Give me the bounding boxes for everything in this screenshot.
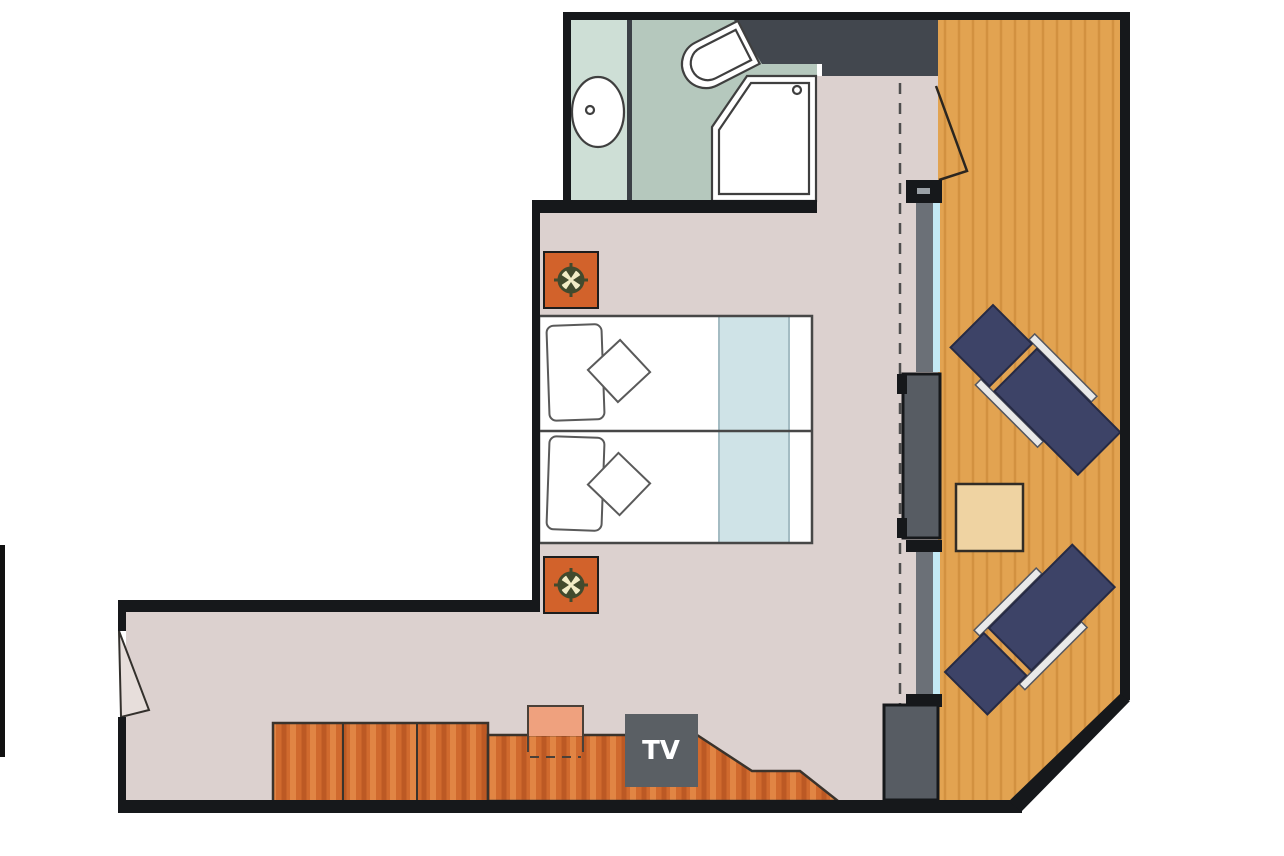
- wall-bedroom-left: [532, 200, 540, 612]
- wall-bottom: [118, 800, 1022, 813]
- bed-runner: [719, 317, 789, 542]
- cabin-floor-plan: TV: [0, 0, 1284, 856]
- twin-beds: [539, 316, 812, 543]
- window-lower-cap-top: [906, 540, 942, 552]
- sink-faucet-dot: [586, 106, 594, 114]
- balcony-table: [956, 484, 1023, 551]
- stool: [528, 706, 583, 736]
- wall-bathroom-bottom: [532, 200, 817, 213]
- shower-drain: [793, 86, 801, 94]
- wall-corridor-top: [118, 600, 540, 612]
- door-frame-tab-top: [897, 374, 907, 394]
- door-frame-tab-bottom: [897, 518, 907, 538]
- window-lower-glass: [933, 552, 940, 694]
- window-cap-label: [917, 188, 930, 194]
- bathroom-partition: [627, 20, 632, 200]
- wall-top: [563, 12, 1130, 20]
- wall-entry-jamb-bottom: [118, 717, 126, 803]
- left-edge-plan-fragment: [0, 545, 5, 757]
- floor-plan-page: TV: [0, 0, 1284, 856]
- window-upper-frame: [916, 203, 933, 372]
- wall-pier-at-balcony: [884, 705, 938, 800]
- window-lower-frame: [916, 552, 933, 694]
- wall-balcony-right: [1120, 12, 1130, 700]
- tv-label: TV: [642, 736, 680, 766]
- balcony-sliding-door: [903, 374, 940, 538]
- wardrobe: [273, 723, 488, 803]
- window-upper-glass: [933, 203, 940, 372]
- wall-bathroom-left: [563, 12, 571, 203]
- wall-entry-jamb-top: [118, 600, 126, 631]
- sink: [572, 77, 624, 147]
